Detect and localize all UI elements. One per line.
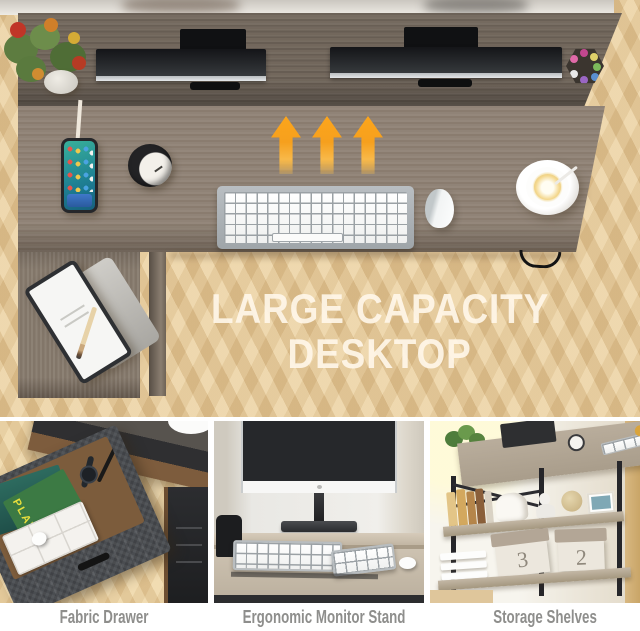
monitor-stand-pole: [314, 493, 324, 523]
feature-panel-fabric-drawer: PLAY: [0, 421, 208, 603]
caption-text: Storage Shelves: [493, 607, 597, 628]
product-image: LARGE CAPACITY DESKTOP PLAY: [0, 0, 640, 631]
phone-app-grid: [66, 145, 93, 192]
hero-title: LARGE CAPACITY DESKTOP: [130, 286, 630, 377]
caption-storage-shelves: Storage Shelves: [440, 607, 640, 628]
smartphone: [61, 138, 98, 213]
clock-hand: [154, 165, 163, 172]
monitor-edge: [330, 73, 562, 78]
blurred-object: [424, 0, 528, 13]
monitor-mount-left: [180, 29, 246, 51]
earbuds-case: [30, 530, 49, 548]
blurred-object: [122, 0, 240, 13]
coffee-saucer: [516, 160, 579, 215]
drawer-handle: [77, 552, 111, 572]
desk-side-vents: [164, 487, 208, 603]
vent-line: [176, 527, 202, 529]
flower: [10, 22, 26, 38]
flower: [44, 18, 58, 32]
photo-frame: [586, 491, 615, 514]
paper-tray: [440, 550, 486, 560]
keyboard: [217, 186, 414, 249]
hero-desk-top-view: LARGE CAPACITY DESKTOP: [0, 0, 640, 417]
keyboard-partial: [601, 433, 640, 455]
box-number: 2: [558, 544, 605, 572]
book-pages: [494, 492, 528, 523]
globe: [560, 490, 583, 513]
feature-panel-storage-shelves: 3 2: [430, 421, 640, 603]
floor: [430, 590, 493, 603]
pen: [590, 53, 598, 61]
feature-captions: Fabric Drawer Ergonomic Monitor Stand St…: [0, 603, 640, 631]
vent-line: [176, 561, 202, 563]
feature-panel-monitor-stand: [214, 421, 424, 603]
pen: [591, 73, 599, 81]
desk-front-frame: [214, 595, 424, 603]
latte-foam: [534, 174, 561, 200]
alarm-clock: [567, 433, 586, 452]
mouse: [425, 189, 454, 228]
flower: [68, 32, 80, 44]
flower: [72, 56, 86, 70]
monitor: [241, 421, 396, 493]
monitor-edge: [96, 76, 266, 81]
mouse: [399, 557, 416, 569]
monitor-partial: [501, 421, 558, 448]
hero-title-line2: DESKTOP: [288, 331, 472, 376]
plant-pot: [44, 70, 78, 94]
paper-tray: [441, 560, 487, 570]
hero-title-line1: LARGE CAPACITY: [211, 286, 549, 331]
spacebar-key: [272, 233, 343, 242]
caption-text: Ergonomic Monitor Stand: [243, 607, 406, 628]
caption-monitor-stand: Ergonomic Monitor Stand: [214, 607, 434, 628]
phone-widget: [67, 194, 92, 207]
monitor-base-left: [190, 82, 240, 90]
photo: [591, 496, 611, 511]
monitor-stand-base: [281, 521, 357, 532]
caption-text: Fabric Drawer: [60, 607, 149, 628]
box-number: 3: [496, 544, 551, 576]
pen: [580, 49, 588, 57]
flower-pot: [4, 18, 92, 94]
monitor-top-view-left: [96, 49, 266, 81]
desk-clock: [128, 144, 172, 187]
monitor-top-view-right: [330, 47, 562, 78]
box-lid: [555, 528, 607, 543]
hanging-cable: [519, 250, 562, 269]
pen: [593, 63, 601, 71]
storage-box: 3: [495, 538, 551, 578]
caption-fabric-drawer: Fabric Drawer: [0, 607, 208, 628]
screen-text-line: [60, 304, 85, 321]
monitor-base-right: [418, 79, 472, 87]
feature-panels: PLAY: [0, 417, 640, 603]
monitor-mount-right: [404, 27, 478, 49]
pen: [580, 76, 588, 84]
vent-line: [176, 544, 202, 546]
keyboard: [233, 540, 343, 572]
flower: [32, 68, 44, 80]
storage-box: 2: [558, 538, 605, 572]
desk-edge-shadow: [170, 252, 574, 259]
